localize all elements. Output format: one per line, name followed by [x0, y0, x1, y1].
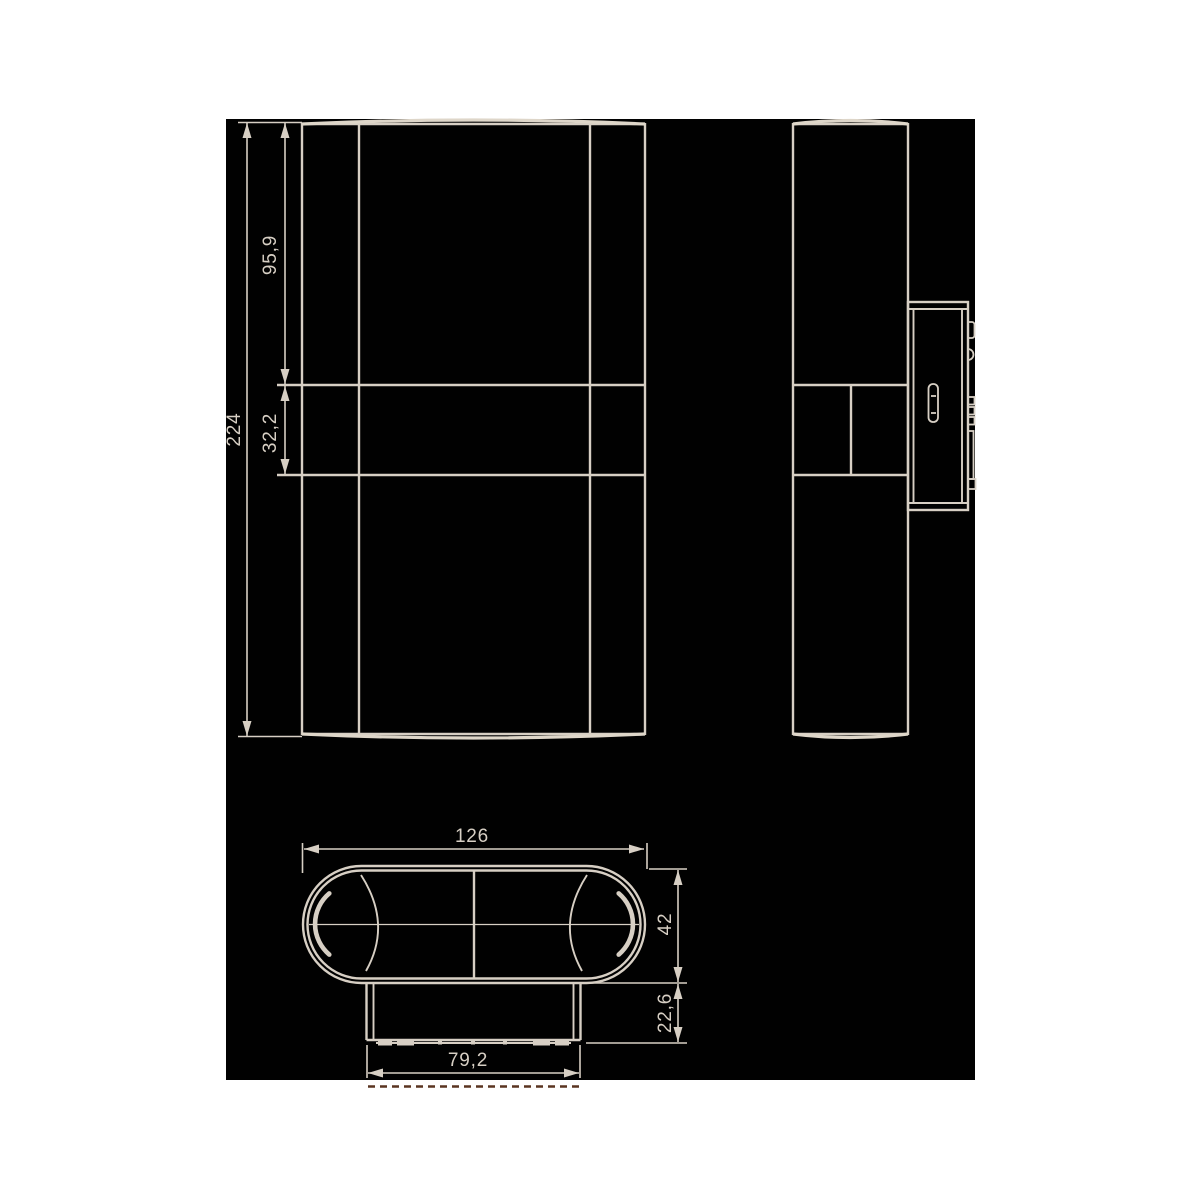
foot-tick-3 — [503, 1040, 507, 1045]
dim-label-overall-width: 126 — [455, 826, 489, 847]
technical-dimension-drawing: 224 95,9 32,2 126 42 22,6 — [0, 0, 1200, 1200]
dim-label-overall-height: 224 — [224, 412, 245, 446]
foot-tick-2 — [471, 1040, 475, 1045]
dim-label-depth: 42 — [655, 913, 676, 936]
dim-label-upper-section: 95,9 — [260, 235, 281, 275]
foot-tick-1 — [438, 1040, 442, 1045]
drawing-canvas — [226, 119, 975, 1080]
dim-label-plate-depth: 22,6 — [655, 993, 676, 1033]
foot-tab-1 — [378, 1040, 392, 1046]
foot-tab-4 — [555, 1040, 569, 1046]
foot-tab-2 — [397, 1040, 414, 1046]
foot-tab-3 — [533, 1040, 550, 1046]
drawing-page: 224 95,9 32,2 126 42 22,6 — [0, 0, 1200, 1200]
dim-label-plate-width: 79,2 — [448, 1050, 488, 1071]
dim-label-middle-section: 32,2 — [260, 413, 281, 453]
